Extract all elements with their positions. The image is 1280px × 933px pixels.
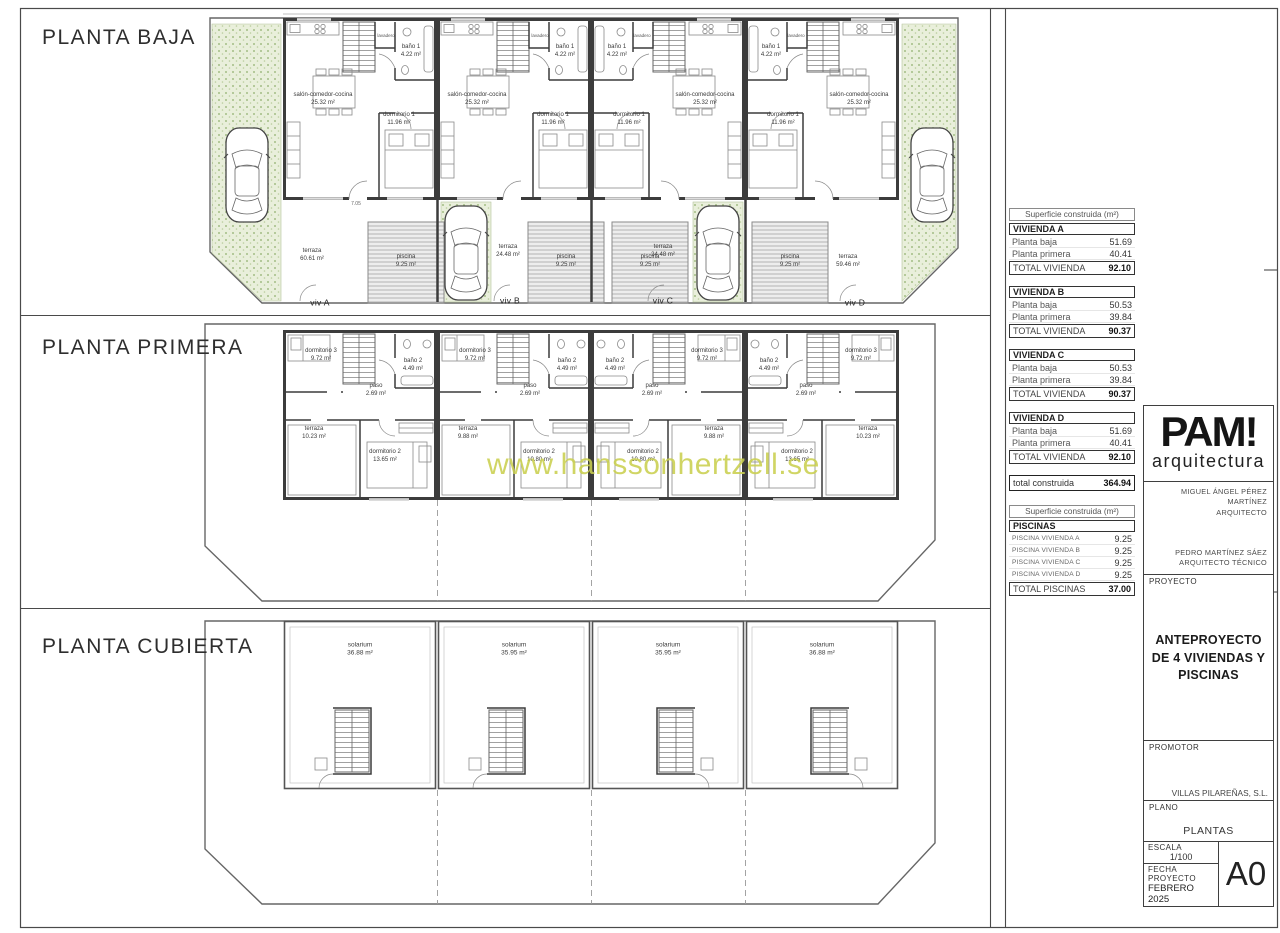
label-bano1-a: baño 14.22 m² (401, 44, 421, 60)
label-terraza1-b: terraza9.88 m² (458, 426, 478, 442)
label-dormitorio3-a: dormitorio 39.72 m² (305, 348, 337, 364)
sheet-size: A0 (1219, 842, 1273, 906)
label-bano1-b: baño 14.22 m² (555, 44, 575, 60)
planta-cubierta-plan (205, 621, 935, 904)
section-title-planta-primera: PLANTA PRIMERA (42, 336, 244, 360)
label-dormitorio3-c: dormitorio 39.72 m² (691, 348, 723, 364)
table-title: VIVIENDA B (1009, 286, 1135, 298)
label-viv-c: viv C (653, 295, 673, 306)
architects-section: MIGUEL ÁNGEL PÉREZ MARTÍNEZ ARQUITECTO P… (1144, 482, 1273, 575)
table-total-row: TOTAL VIVIENDA90.37 (1009, 387, 1135, 401)
label-terraza1-a: terraza10.23 m² (302, 426, 326, 442)
project-title: ANTEPROYECTO DE 4 VIVIENDAS Y PISCINAS (1149, 632, 1268, 685)
table-row: Planta primera40.41 (1009, 248, 1135, 260)
table-title: VIVIENDA C (1009, 349, 1135, 361)
label-terraza1-c: terraza9.88 m² (704, 426, 724, 442)
table-row: Planta baja50.53 (1009, 299, 1135, 311)
label-terraza-d: terraza59.46 m² (836, 254, 860, 270)
label-bano1-d: baño 14.22 m² (761, 44, 781, 60)
title-block: PAM! arquitectura MIGUEL ÁNGEL PÉREZ MAR… (1143, 405, 1274, 907)
label-bano1-c: baño 14.22 m² (607, 44, 627, 60)
architect-name-block: MIGUEL ÁNGEL PÉREZ MARTÍNEZ ARQUITECTO (1150, 487, 1267, 520)
table-row: PISCINA VIVIENDA B9.25 (1009, 545, 1135, 557)
logo-subtext: arquitectura (1144, 451, 1273, 472)
label-dormitorio1-b: dormitorio 111.96 m² (537, 112, 569, 128)
table-row: Planta baja50.53 (1009, 362, 1135, 374)
technical-architect-block: PEDRO MARTÍNEZ SÁEZ ARQUITECTO TÉCNICO (1150, 548, 1267, 570)
logo-text: PAM! (1144, 414, 1273, 450)
label-bano2-c: baño 24.49 m² (605, 358, 625, 374)
label-dormitorio3-b: dormitorio 39.72 m² (459, 348, 491, 364)
label-viv-b: viv B (500, 295, 520, 306)
vivienda-a-table: VIVIENDA A Planta baja51.69 Planta prime… (1009, 223, 1135, 275)
table-title: PISCINAS (1009, 520, 1135, 532)
label-lavadero-c: lavadero (633, 33, 650, 39)
label-terraza-a: terraza60.61 m² (300, 248, 324, 264)
label-paso-a: paso2.69 m² (366, 383, 386, 399)
label-viv-d: viv D (845, 297, 865, 308)
label-piscina-d: piscina9.25 m² (780, 254, 800, 270)
table-total-row: TOTAL VIVIENDA90.37 (1009, 324, 1135, 338)
label-piscina-c: piscina9.25 m² (640, 254, 660, 270)
label-piscina-b: piscina9.25 m² (556, 254, 576, 270)
label-dormitorio2-a: dormitorio 213.65 m² (369, 449, 401, 465)
table-row: Planta primera40.41 (1009, 437, 1135, 449)
label-paso-c: paso2.69 m² (642, 383, 662, 399)
table-title: VIVIENDA A (1009, 223, 1135, 235)
table-total-row: TOTAL VIVIENDA92.10 (1009, 261, 1135, 275)
firm-logo: PAM! arquitectura (1144, 406, 1273, 482)
label-terraza-b: terraza24.48 m² (496, 244, 520, 260)
scale-value: 1/100 (1148, 852, 1214, 862)
section-title-planta-cubierta: PLANTA CUBIERTA (42, 635, 254, 659)
label-bano2-b: baño 24.49 m² (557, 358, 577, 374)
label-viv-a: viv A (310, 297, 329, 308)
label-solarium-b: solarium35.95 m² (501, 642, 527, 659)
promotor-section: PROMOTOR VILLAS PILAREÑAS, S.L. (1144, 740, 1273, 800)
table-row: Planta baja51.69 (1009, 236, 1135, 248)
label-salon-d: salón-comedor-cocina25.32 m² (829, 92, 888, 108)
proyecto-section: PROYECTO ANTEPROYECTO DE 4 VIVIENDAS Y P… (1144, 574, 1273, 740)
table-row: Planta primera39.84 (1009, 374, 1135, 386)
label-paso-d: paso2.69 m² (796, 383, 816, 399)
area-tables: Superficie construida (m²) VIVIENDA A Pl… (1009, 208, 1135, 607)
label-piscina-a: piscina9.25 m² (396, 254, 416, 270)
table-total-row: TOTAL PISCINAS37.00 (1009, 582, 1135, 596)
date-value: FEBRERO 2025 (1148, 883, 1214, 905)
promotor-name: VILLAS PILAREÑAS, S.L. (1149, 788, 1268, 798)
label-lavadero-a: lavadero (377, 33, 394, 39)
plan-name: PLANTAS (1149, 825, 1268, 839)
label-terraza1-d: terraza10.23 m² (856, 426, 880, 442)
label-dormitorio1-c: dormitorio 111.96 m² (613, 112, 645, 128)
surface-header-piscinas: Superficie construida (m²) (1009, 505, 1135, 518)
scale-date-column: ESCALA 1/100 FECHA PROYECTO FEBRERO 2025 (1144, 842, 1219, 906)
drawing-sheet: PLANTA BAJA PLANTA PRIMERA PLANTA CUBIER… (0, 0, 1280, 933)
label-dormitorio1-d: dormitorio 111.96 m² (767, 112, 799, 128)
label-dimension: 7.05 (351, 201, 361, 208)
label-salon-b: salón-comedor-cocina25.32 m² (447, 92, 506, 108)
vivienda-c-table: VIVIENDA C Planta baja50.53 Planta prime… (1009, 349, 1135, 401)
table-row: Planta baja51.69 (1009, 425, 1135, 437)
table-row: PISCINA VIVIENDA C9.25 (1009, 557, 1135, 569)
scale-cell: ESCALA 1/100 (1144, 842, 1218, 864)
table-row: PISCINA VIVIENDA A9.25 (1009, 533, 1135, 545)
label-solarium-a: solarium36.88 m² (347, 642, 373, 659)
table-title: VIVIENDA D (1009, 412, 1135, 424)
label-salon-a: salón-comedor-cocina25.32 m² (293, 92, 352, 108)
vivienda-b-table: VIVIENDA B Planta baja50.53 Planta prime… (1009, 286, 1135, 338)
date-cell: FECHA PROYECTO FEBRERO 2025 (1144, 864, 1218, 906)
table-row: Planta primera39.84 (1009, 311, 1135, 323)
label-lavadero-b: lavadero (531, 33, 548, 39)
label-solarium-d: solarium36.88 m² (809, 642, 835, 659)
table-row: PISCINA VIVIENDA D9.25 (1009, 569, 1135, 581)
surface-header: Superficie construida (m²) (1009, 208, 1135, 221)
label-lavadero-d: lavadero (787, 33, 804, 39)
label-bano2-d: baño 24.49 m² (759, 358, 779, 374)
label-bano2-a: baño 24.49 m² (403, 358, 423, 374)
label-solarium-c: solarium35.95 m² (655, 642, 681, 659)
label-dormitorio3-d: dormitorio 39.72 m² (845, 348, 877, 364)
label-dormitorio1-a: dormitorio 111.96 m² (383, 112, 415, 128)
watermark: www.hanssonhertzell.se (487, 448, 820, 482)
table-total-row: TOTAL VIVIENDA92.10 (1009, 450, 1135, 464)
label-salon-c: salón-comedor-cocina25.32 m² (675, 92, 734, 108)
scale-date-section: ESCALA 1/100 FECHA PROYECTO FEBRERO 2025… (1144, 841, 1273, 906)
label-paso-b: paso2.69 m² (520, 383, 540, 399)
section-title-planta-baja: PLANTA BAJA (42, 26, 196, 50)
total-construida-row: total construida364.94 (1009, 475, 1135, 491)
plano-section: PLANO PLANTAS (1144, 800, 1273, 841)
piscinas-table: PISCINAS PISCINA VIVIENDA A9.25 PISCINA … (1009, 520, 1135, 596)
vivienda-d-table: VIVIENDA D Planta baja51.69 Planta prime… (1009, 412, 1135, 464)
